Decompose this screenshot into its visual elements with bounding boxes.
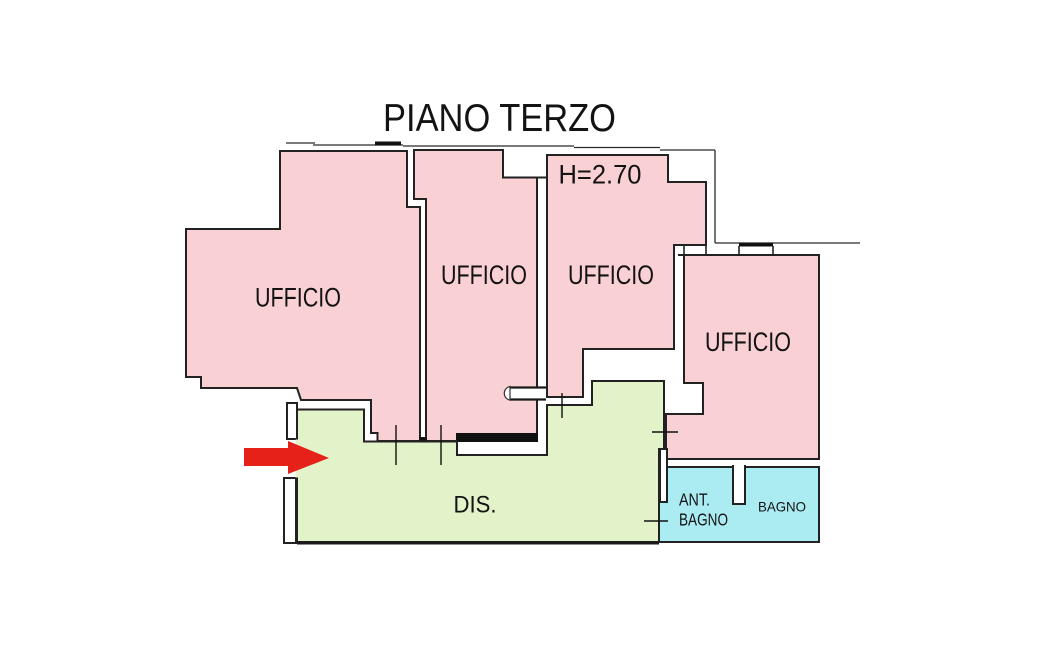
svg-text:DIS.: DIS.	[454, 491, 497, 518]
svg-text:UFFICIO: UFFICIO	[568, 260, 654, 290]
svg-text:UFFICIO: UFFICIO	[705, 327, 791, 357]
svg-text:UFFICIO: UFFICIO	[441, 260, 527, 290]
svg-text:BAGNO: BAGNO	[679, 510, 728, 530]
svg-text:ANT.: ANT.	[679, 490, 710, 510]
svg-text:UFFICIO: UFFICIO	[255, 283, 341, 313]
svg-text:H=2.70: H=2.70	[559, 160, 642, 190]
svg-text:BAGNO: BAGNO	[758, 499, 806, 515]
svg-text:PIANO TERZO: PIANO TERZO	[383, 97, 616, 140]
